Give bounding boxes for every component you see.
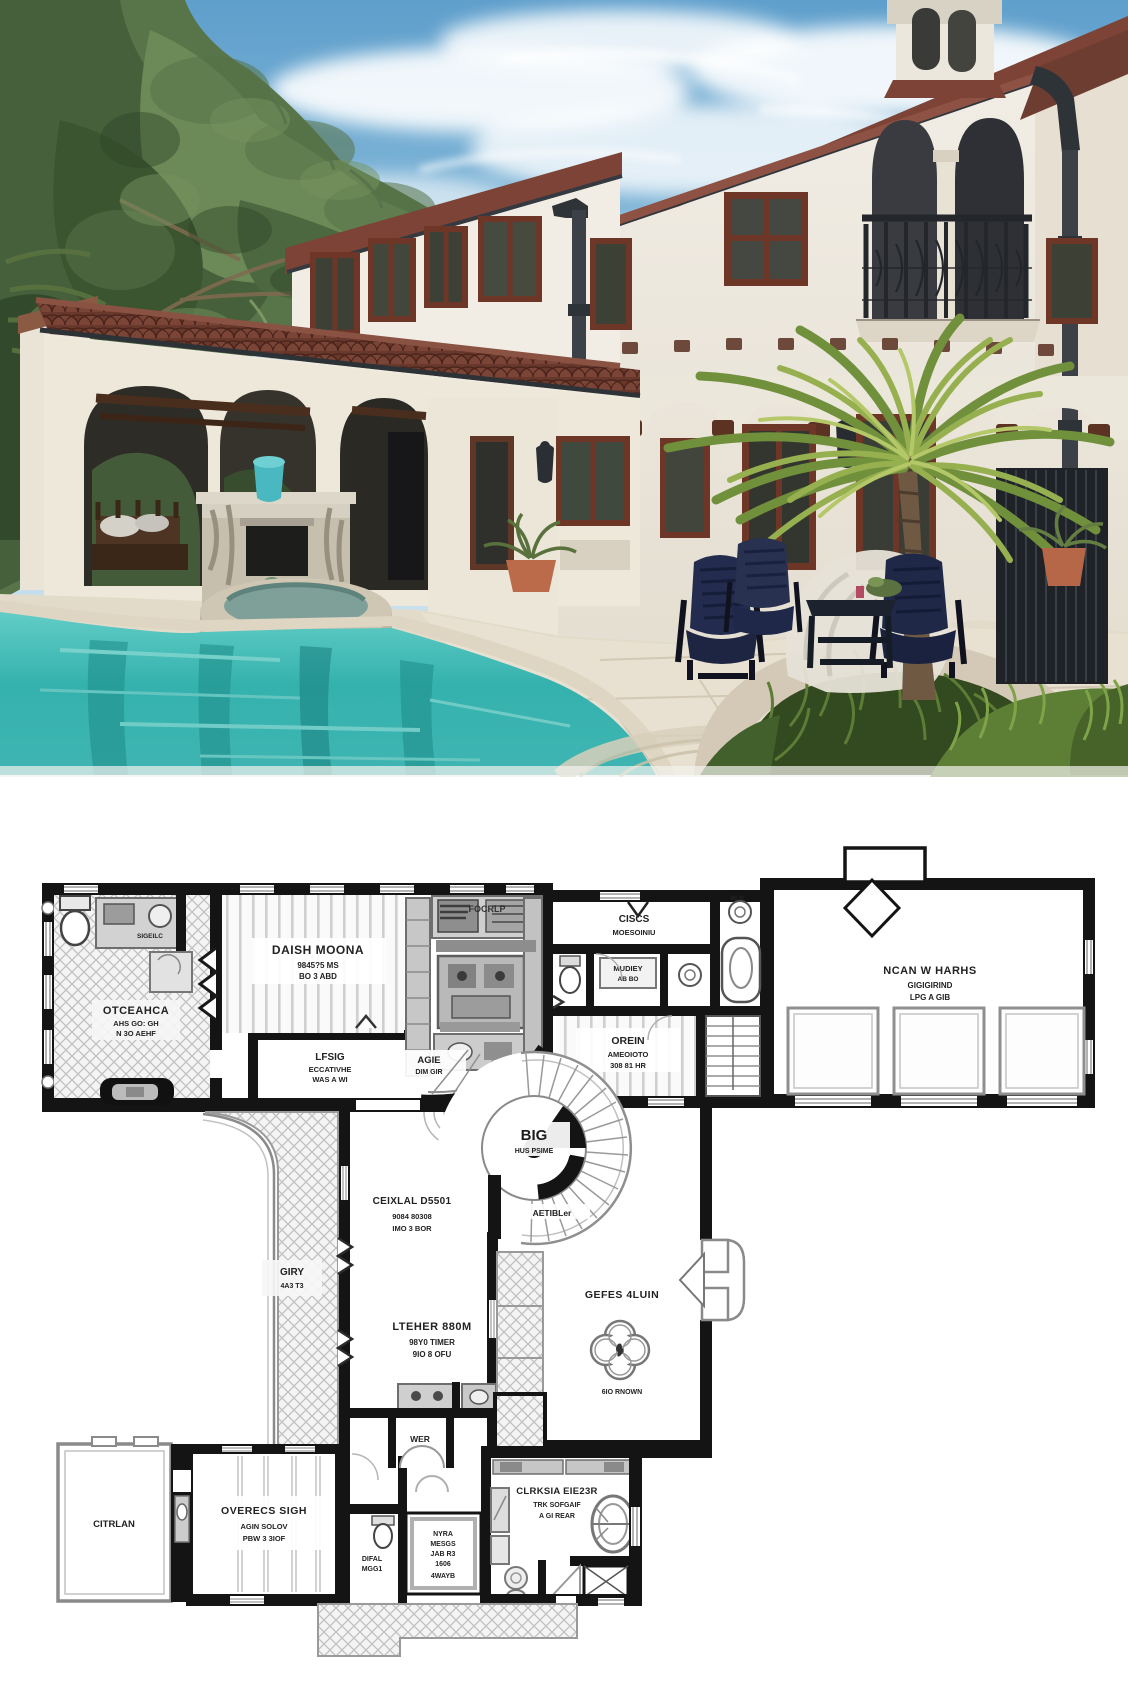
svg-text:JAB R3: JAB R3 <box>431 1551 456 1558</box>
svg-text:GIRY: GIRY <box>280 1267 304 1278</box>
svg-text:OREIN: OREIN <box>611 1035 644 1047</box>
svg-text:IMO 3 BOR: IMO 3 BOR <box>392 1224 432 1233</box>
svg-text:DIFAL: DIFAL <box>362 1556 383 1563</box>
svg-text:TRK SOFGAIF: TRK SOFGAIF <box>533 1502 581 1509</box>
svg-text:CEIXLAL D5501: CEIXLAL D5501 <box>373 1196 452 1207</box>
svg-text:ECCATIVHE: ECCATIVHE <box>309 1065 352 1074</box>
svg-text:AGIN SOLOV: AGIN SOLOV <box>240 1522 287 1531</box>
svg-text:98Y0 TIMER: 98Y0 TIMER <box>409 1338 455 1347</box>
svg-text:WER: WER <box>410 1434 430 1444</box>
svg-text:AB BO: AB BO <box>618 976 639 983</box>
svg-text:CISCS: CISCS <box>619 914 650 925</box>
svg-text:9845?5 MS: 9845?5 MS <box>297 961 339 970</box>
svg-text:AMEOIOTO: AMEOIOTO <box>608 1050 649 1059</box>
svg-text:LFSIG: LFSIG <box>315 1052 345 1063</box>
svg-text:4WAYB: 4WAYB <box>431 1573 455 1580</box>
svg-text:GEFES 4LUIN: GEFES 4LUIN <box>585 1289 659 1301</box>
svg-text:WAS A WI: WAS A WI <box>312 1075 347 1084</box>
svg-text:N 3O AEHF: N 3O AEHF <box>116 1029 156 1038</box>
svg-text:MESGS: MESGS <box>430 1541 456 1548</box>
svg-text:CLRKSIA EIE23R: CLRKSIA EIE23R <box>516 1486 597 1497</box>
svg-text:MOESOINIU: MOESOINIU <box>613 928 656 937</box>
svg-text:NCAN W HARHS: NCAN W HARHS <box>883 965 976 977</box>
svg-text:BO 3 ABD: BO 3 ABD <box>299 972 337 981</box>
svg-text:LTEHER 880M: LTEHER 880M <box>392 1321 471 1333</box>
svg-text:9IO 8 OFU: 9IO 8 OFU <box>413 1350 452 1359</box>
svg-text:LPG A GIB: LPG A GIB <box>910 993 951 1002</box>
svg-text:AHS GO: GH: AHS GO: GH <box>113 1019 158 1028</box>
svg-text:DIM GIR: DIM GIR <box>415 1069 442 1076</box>
svg-text:GIGIGIRIND: GIGIGIRIND <box>908 981 953 990</box>
svg-text:NYRA: NYRA <box>433 1531 453 1538</box>
svg-text:4A3 T3: 4A3 T3 <box>281 1283 304 1290</box>
svg-text:OTCEAHCA: OTCEAHCA <box>103 1005 169 1017</box>
svg-text:BIG: BIG <box>521 1127 548 1144</box>
svg-text:DAISH MOONA: DAISH MOONA <box>272 943 364 957</box>
svg-text:CITRLAN: CITRLAN <box>93 1519 135 1530</box>
svg-text:HUS PSIME: HUS PSIME <box>515 1148 554 1155</box>
svg-text:SIGEILC: SIGEILC <box>137 933 163 940</box>
svg-text:PBW 3 3IOF: PBW 3 3IOF <box>243 1534 286 1543</box>
svg-text:9084 80308: 9084 80308 <box>392 1212 432 1221</box>
svg-text:MGG1: MGG1 <box>362 1566 383 1573</box>
svg-text:AETIBLer: AETIBLer <box>533 1208 572 1218</box>
svg-text:FOCRLP: FOCRLP <box>469 904 506 914</box>
svg-text:AGIE: AGIE <box>417 1055 440 1066</box>
svg-text:A GI REAR: A GI REAR <box>539 1513 575 1520</box>
svg-text:86 B: 86 B <box>730 895 744 902</box>
svg-text:308 81 HR: 308 81 HR <box>610 1061 646 1070</box>
svg-text:1606: 1606 <box>435 1561 451 1568</box>
svg-text:OVERECS SIGH: OVERECS SIGH <box>221 1505 307 1517</box>
svg-text:6IO RNOWN: 6IO RNOWN <box>602 1389 642 1396</box>
